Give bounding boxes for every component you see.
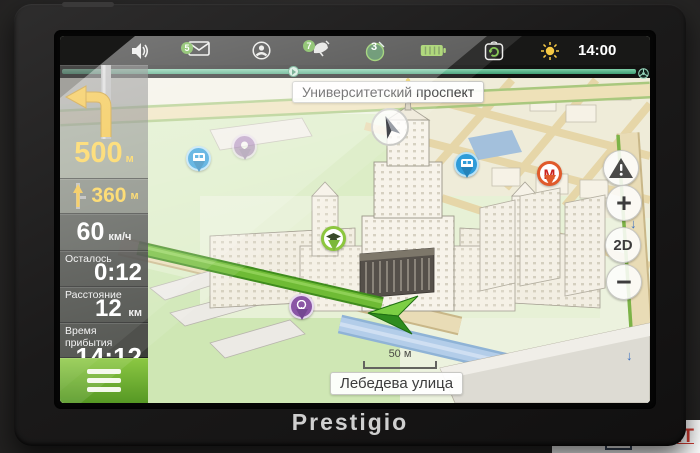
- compass-control[interactable]: [371, 108, 409, 146]
- next-maneuver-panel[interactable]: 500 м: [60, 65, 148, 179]
- arrival-panel[interactable]: Время прибытия 14:12: [60, 323, 148, 358]
- status-bar: 5 7 3: [60, 36, 650, 65]
- second-maneuver-panel[interactable]: 360 м: [60, 179, 148, 214]
- map-graphics: [60, 78, 650, 403]
- map-scale: 50 м: [363, 348, 437, 369]
- route-progress-bar[interactable]: [60, 65, 650, 78]
- satellite-dish-badge: 7: [303, 40, 315, 52]
- graduation-cap-icon: [326, 233, 341, 245]
- time-left-panel[interactable]: Осталось 0:12: [60, 251, 148, 287]
- speed-value: 60: [77, 218, 105, 247]
- turn-left-arrow-icon: [60, 65, 148, 139]
- battery-icon: [420, 36, 446, 65]
- satellites-icon[interactable]: 3: [364, 36, 386, 65]
- zoom-out-button[interactable]: −: [606, 264, 642, 300]
- messages-icon[interactable]: 5: [188, 36, 210, 65]
- brightness-icon[interactable]: [540, 36, 560, 65]
- bus-icon: [460, 158, 474, 171]
- route-progress-fill: [62, 69, 636, 74]
- second-distance-unit: м: [130, 190, 138, 202]
- university-pin[interactable]: [321, 226, 346, 251]
- poi-pin-faded[interactable]: [232, 134, 257, 159]
- metro-letter: М: [544, 167, 556, 181]
- hazard-warning-button[interactable]: [603, 150, 639, 186]
- bus-stop-pin-right[interactable]: [454, 152, 479, 177]
- turn-distance-value: 500: [74, 137, 122, 170]
- turn-distance-unit: м: [126, 153, 134, 165]
- oneway-arrow-icon: ↓: [626, 348, 633, 363]
- steering-wheel-icon[interactable]: [638, 66, 649, 84]
- straight-ahead-icon: [69, 183, 87, 209]
- navigation-screen: Университетский проспект Лебедева улица …: [60, 36, 650, 403]
- metro-pin[interactable]: М: [537, 161, 562, 186]
- view-mode-2d-button[interactable]: 2D: [605, 227, 641, 263]
- sync-icon[interactable]: [484, 36, 504, 65]
- second-distance-value: 360: [91, 184, 126, 208]
- compass-needle-icon: [373, 110, 407, 144]
- distance-panel[interactable]: Расстояние 12 км: [60, 287, 148, 323]
- bus-icon: [192, 152, 206, 165]
- messages-badge: 5: [181, 42, 193, 54]
- street-label-top: Университетский проспект: [292, 81, 484, 103]
- speed-unit: км/ч: [108, 231, 131, 243]
- menu-button[interactable]: [60, 358, 148, 403]
- profile-icon[interactable]: [252, 36, 271, 65]
- park-pin[interactable]: [289, 294, 314, 319]
- bus-stop-pin-left[interactable]: [186, 146, 211, 171]
- satellites-count: 3: [371, 41, 377, 53]
- poi-icon: [238, 140, 251, 153]
- street-label-bottom: Лебедева улица: [330, 372, 463, 395]
- map-scale-bar: [363, 361, 437, 369]
- map-canvas[interactable]: Университетский проспект Лебедева улица …: [60, 78, 650, 403]
- brand-logo: Prestigio: [14, 409, 686, 436]
- route-progress-marker: [288, 66, 299, 77]
- navigation-sidebar: 500 м 360 м 60 км/ч: [60, 65, 148, 403]
- map-scale-label: 50 м: [363, 348, 437, 360]
- time-left-value: 0:12: [65, 262, 142, 284]
- distance-unit: км: [128, 307, 142, 319]
- photo-background: MARKIT: [0, 0, 700, 453]
- satellite-dish-icon[interactable]: 7: [310, 36, 331, 65]
- tree-icon: [295, 300, 308, 314]
- clock-time: 14:00: [578, 36, 616, 65]
- volume-icon[interactable]: [130, 36, 152, 65]
- speed-panel[interactable]: 60 км/ч: [60, 214, 148, 251]
- warning-triangle-icon: [608, 156, 634, 180]
- power-button[interactable]: [62, 2, 114, 7]
- distance-value: 12: [95, 295, 122, 322]
- zoom-in-button[interactable]: +: [606, 185, 642, 221]
- hamburger-icon: [87, 369, 121, 374]
- gps-device: Университетский проспект Лебедева улица …: [14, 4, 686, 446]
